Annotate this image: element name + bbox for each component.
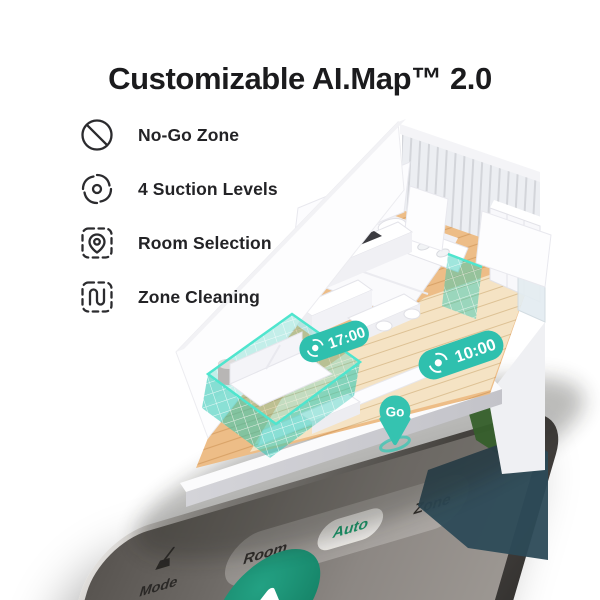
feature-item-room-selection: Room Selection: [78, 224, 278, 262]
svg-text:Go: Go: [386, 405, 405, 420]
feature-item-no-go-zone: No-Go Zone: [78, 116, 278, 154]
room-selection-icon: [78, 224, 116, 262]
feature-list: No-Go Zone 4 Suction Levels: [78, 116, 278, 332]
feature-label: No-Go Zone: [138, 125, 239, 146]
feature-item-zone-cleaning: Zone Cleaning: [78, 278, 278, 316]
chair: [376, 321, 392, 331]
hero-image: Mode Room Auto Zone: [0, 0, 600, 600]
feature-label: Room Selection: [138, 233, 272, 254]
feature-item-suction-levels: 4 Suction Levels: [78, 170, 278, 208]
feature-label: Zone Cleaning: [138, 287, 260, 308]
chair: [404, 309, 420, 319]
page-title: Customizable AI.Map™ 2.0: [0, 61, 600, 97]
feature-label: 4 Suction Levels: [138, 179, 278, 200]
no-go-icon: [78, 116, 116, 154]
zone-cleaning-icon: [78, 278, 116, 316]
suction-icon: [78, 170, 116, 208]
